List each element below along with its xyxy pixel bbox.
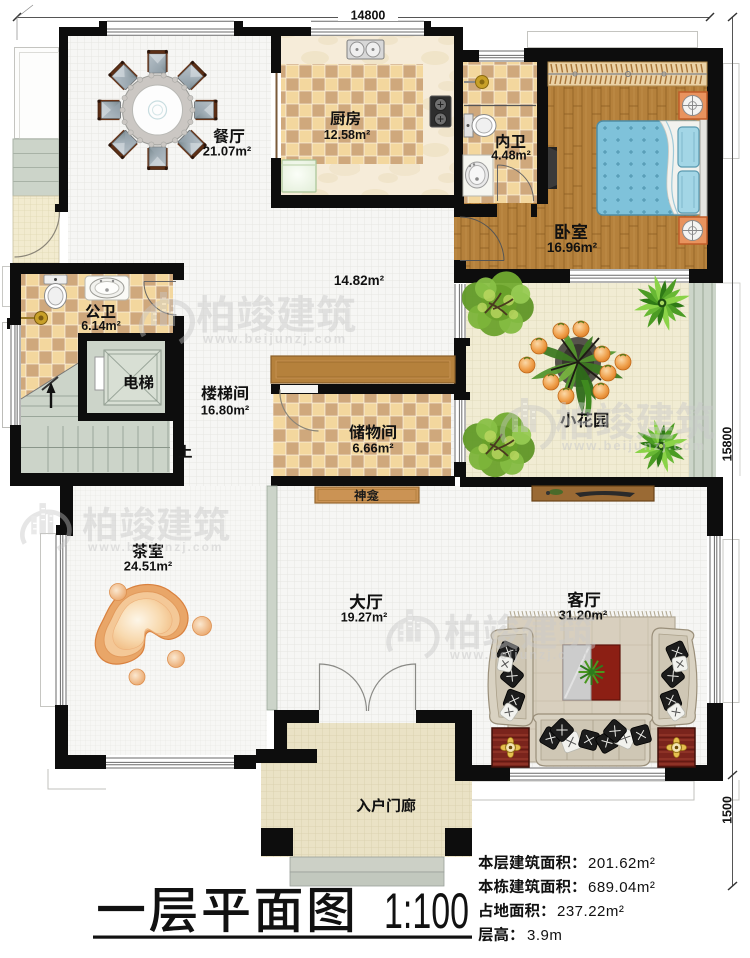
svg-text:14800: 14800	[351, 9, 386, 23]
svg-text:21.07m²: 21.07m²	[203, 144, 252, 159]
svg-text:4.48m²: 4.48m²	[491, 149, 531, 163]
svg-text:14.82m²: 14.82m²	[334, 273, 385, 288]
svg-text:www.beijunzj.com: www.beijunzj.com	[561, 438, 706, 453]
svg-text:24.51m²: 24.51m²	[124, 559, 173, 574]
svg-text:201.62m²: 201.62m²	[588, 855, 655, 872]
svg-text:12.58m²: 12.58m²	[324, 128, 371, 142]
svg-text:237.22m²: 237.22m²	[557, 903, 624, 920]
svg-text:16.96m²: 16.96m²	[547, 240, 598, 255]
svg-text:19.27m²: 19.27m²	[341, 611, 388, 625]
svg-text:1500: 1500	[721, 796, 735, 824]
svg-text:www.beijunzj.com: www.beijunzj.com	[202, 331, 347, 346]
svg-text:www.beijunzj.com: www.beijunzj.com	[449, 648, 590, 662]
svg-text:1:100: 1:100	[384, 883, 469, 939]
svg-text:16.80m²: 16.80m²	[201, 403, 250, 418]
svg-text:6.66m²: 6.66m²	[352, 441, 394, 456]
svg-text:3.9m: 3.9m	[527, 927, 562, 944]
svg-text:6.14m²: 6.14m²	[81, 319, 121, 333]
svg-text:www.beijunzj.com: www.beijunzj.com	[87, 540, 224, 554]
svg-text:689.04m²: 689.04m²	[588, 879, 655, 896]
svg-text:15800: 15800	[721, 427, 735, 462]
